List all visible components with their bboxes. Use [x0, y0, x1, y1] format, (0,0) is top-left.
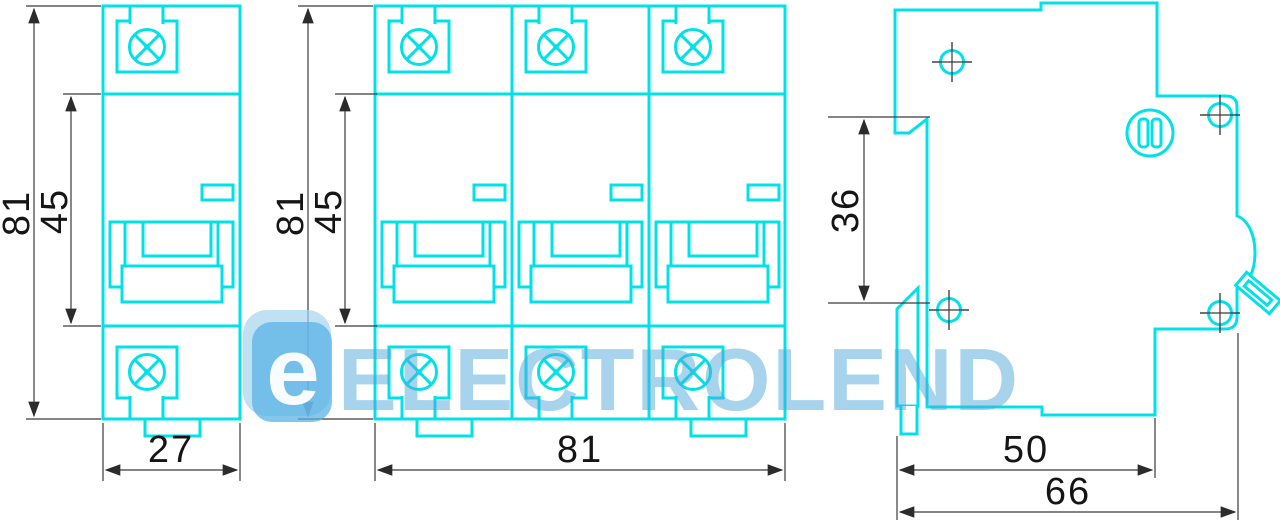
- watermark-logo: [252, 322, 332, 422]
- dim-depth-label: 50: [1003, 429, 1049, 471]
- dim-height-label: 81: [270, 190, 312, 236]
- dim-height-label: 81: [0, 190, 38, 236]
- mounting-foot: [417, 419, 472, 436]
- dim-width-label: 81: [557, 429, 603, 471]
- single-pole-front-view: [103, 6, 240, 436]
- dim-window-label: 45: [308, 188, 350, 234]
- dim-rail-label: 36: [825, 187, 867, 233]
- din-clip: [897, 288, 918, 406]
- watermark-logo-back: [243, 310, 331, 416]
- dim-total-depth-label: 66: [1045, 471, 1091, 513]
- toggle-handle-side: [1236, 272, 1280, 313]
- dim-width-label: 27: [148, 429, 194, 471]
- drawing-canvas: 81 45 27 81 45 81: [0, 0, 1280, 527]
- din-clip-tab: [901, 406, 917, 434]
- mounting-foot: [691, 419, 746, 436]
- side-view: [895, 3, 1280, 434]
- watermark-logo-letter: e: [266, 318, 319, 425]
- three-pole-front-view: [375, 6, 785, 436]
- dim-window-label: 45: [34, 188, 76, 234]
